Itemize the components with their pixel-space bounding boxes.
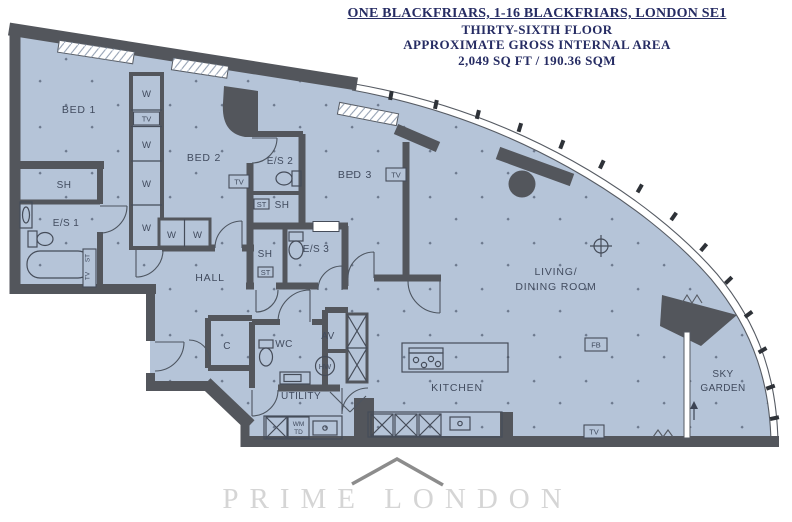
title-area-caption: APPROXIMATE GROSS INTERNAL AREA [296, 37, 778, 53]
fb-label: FB [591, 341, 601, 350]
label-es3: E/S 3 [303, 244, 329, 255]
label-sky-line1: SKY [712, 369, 733, 380]
floorplan-page: W TV W W W W W ST TV ST ST [0, 0, 792, 522]
hot-water-label: HW [319, 362, 332, 371]
label-bed1: BED 1 [62, 104, 96, 116]
wardrobe-label: W [142, 223, 151, 234]
label-bed3: BED 3 [338, 169, 372, 181]
label-living-line2: DINING ROOM [515, 281, 596, 293]
tv-label: TV [589, 428, 599, 437]
wardrobe-label: W [142, 140, 151, 151]
label-sh3: SH [258, 249, 273, 260]
wardrobe-label: W [142, 179, 151, 190]
label-es1: E/S 1 [53, 218, 79, 229]
watermark-chevron [352, 459, 443, 485]
tv-label: TV [391, 171, 401, 180]
title-address: ONE BLACKFRIARS, 1-16 BLACKFRIARS, LONDO… [296, 6, 778, 22]
floorplan-drawing: W TV W W W W W ST TV ST ST [0, 0, 792, 522]
bed1-wardrobe-column: W TV W W W [131, 74, 162, 248]
storage-label: ST [261, 268, 271, 277]
structural-column [509, 171, 536, 198]
storage-label: ST [257, 200, 267, 209]
label-hall: HALL [195, 272, 224, 284]
label-es2: E/S 2 [267, 156, 293, 167]
label-sh1: SH [57, 180, 72, 191]
title-floor: THIRTY-SIXTH FLOOR [296, 22, 778, 38]
label-sky-line2: GARDEN [700, 383, 745, 394]
tv-label: TV [142, 115, 152, 124]
watermark-text: PRIME LONDON [160, 483, 635, 516]
wardrobe-label: W [167, 230, 176, 241]
washing-machine-label: WM [293, 421, 305, 428]
title-area-value: 2,049 SQ FT / 190.36 SQM [296, 53, 778, 69]
label-sh2: SH [275, 200, 290, 211]
tv-label: TV [234, 178, 244, 187]
label-living-line1: LIVING/ [535, 266, 578, 278]
label-utility: UTILITY [281, 391, 321, 402]
av-linen-unit [347, 314, 367, 382]
label-bed2: BED 2 [187, 152, 221, 164]
label-wc: WC [275, 339, 292, 350]
title-block: ONE BLACKFRIARS, 1-16 BLACKFRIARS, LONDO… [296, 6, 778, 68]
wardrobe-label: W [193, 230, 202, 241]
tumble-dryer-label: TD [294, 429, 303, 436]
label-closet: C [223, 341, 231, 352]
tv-label: TV [85, 271, 92, 280]
bed2-wardrobes: W W [159, 219, 210, 247]
storage-label: ST [85, 254, 92, 262]
label-kitchen: KITCHEN [431, 382, 483, 394]
label-av: AV [321, 331, 334, 342]
wardrobe-label: W [142, 89, 151, 100]
